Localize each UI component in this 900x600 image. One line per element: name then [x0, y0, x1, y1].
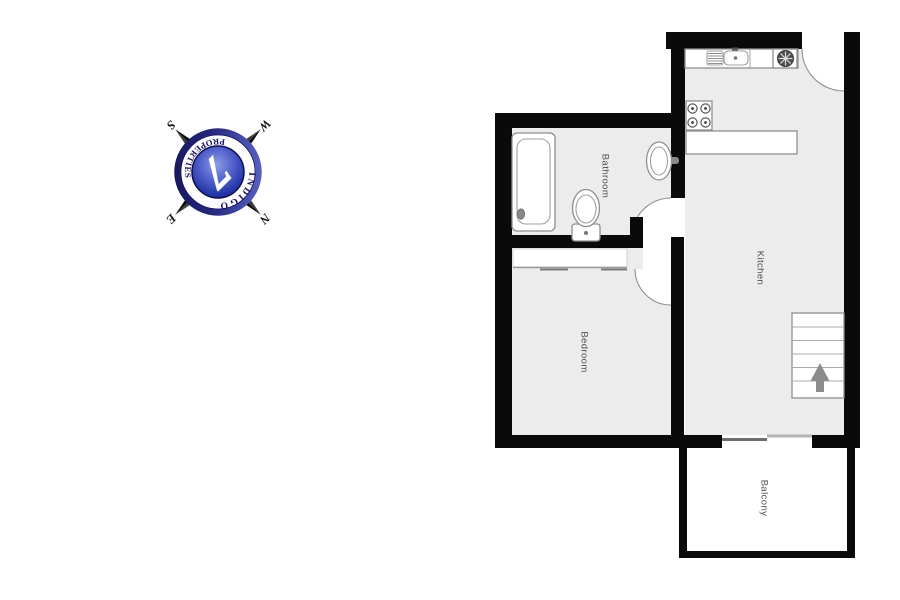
island-counter: [686, 131, 797, 154]
sliding-door-panel-2: [767, 435, 812, 438]
wardrobe: [513, 249, 627, 267]
toilet-bowl-inner: [576, 195, 596, 223]
room-label-bedroom: Bedroom: [579, 331, 590, 372]
wall-kitchen-top: [666, 32, 802, 49]
toilet-flush-dot: [584, 231, 588, 235]
floor-plan: Bathroom Kitchen Bedroom Balcony: [0, 0, 900, 600]
wall-kitchen-bedroom: [671, 237, 684, 448]
sliding-door-panel-1: [722, 438, 767, 441]
bathroom-sink-basin: [651, 147, 668, 175]
wall-door-stub: [630, 217, 643, 248]
room-label-kitchen: Kitchen: [755, 251, 766, 286]
balcony-wall-bottom: [679, 551, 855, 558]
compass-rotated-group: N E S W INDIGO PROPERTIES 7: [143, 97, 293, 247]
balcony-wall-right: [847, 446, 855, 555]
room-label-balcony: Balcony: [759, 480, 770, 517]
wall-bathroom-bottom: [495, 235, 643, 248]
page: Bathroom Kitchen Bedroom Balcony: [0, 0, 900, 600]
balcony-wall-left: [679, 446, 687, 555]
bedroom-fixtures: [513, 249, 627, 270]
wall-right: [844, 32, 860, 448]
compass-letter-s: S: [164, 118, 179, 133]
bathtub-drain: [518, 209, 525, 219]
wall-bottom-left: [495, 435, 722, 448]
fan-spokes: [779, 52, 793, 66]
brand-logo: N E S W INDIGO PROPERTIES 7: [143, 97, 293, 247]
wall-bathroom-top: [495, 113, 685, 128]
room-label-bathroom: Bathroom: [600, 154, 611, 198]
wall-left: [495, 113, 512, 448]
kitchen-sink-dot: [734, 56, 738, 60]
compass-logo: N E S W INDIGO PROPERTIES 7: [143, 97, 293, 247]
